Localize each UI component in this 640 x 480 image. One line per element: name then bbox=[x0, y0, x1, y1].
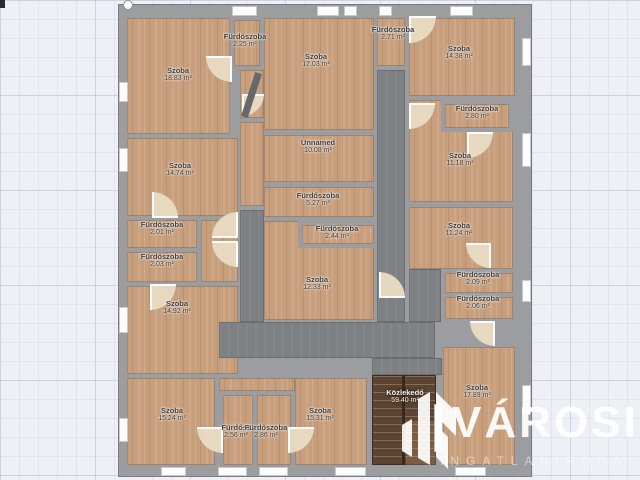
window[interactable] bbox=[455, 467, 486, 476]
room-area: 2.06 m² bbox=[457, 303, 500, 311]
room-label: Szoba11.24 m² bbox=[445, 221, 472, 238]
room-name: Közlekedő bbox=[386, 388, 424, 397]
window[interactable] bbox=[232, 6, 257, 16]
floorplan-canvas: Szoba18.83 m² Fürdőszoba2.25 m² Szoba17.… bbox=[0, 0, 640, 480]
room-label: Szoba14.92 m² bbox=[163, 299, 191, 316]
room-label: Fürdőszoba5.27 m² bbox=[297, 191, 340, 208]
room-label: Fürdőszoba2.71 m² bbox=[372, 25, 415, 42]
hall-stair-landing[interactable] bbox=[372, 358, 442, 375]
hall-corridor-left[interactable] bbox=[240, 210, 264, 322]
window[interactable] bbox=[119, 307, 128, 333]
room-area: 14.92 m² bbox=[163, 308, 191, 316]
room-name: Fürdőszoba bbox=[245, 423, 288, 432]
window[interactable] bbox=[522, 38, 531, 66]
room-area: 14.38 m² bbox=[445, 53, 473, 61]
room-label: Szoba18.83 m² bbox=[164, 66, 192, 83]
window[interactable] bbox=[522, 280, 531, 302]
window[interactable] bbox=[379, 6, 392, 16]
room-label: Szoba11.18 m² bbox=[446, 151, 473, 168]
room-label: Fürdőszoba2.25 m² bbox=[224, 32, 267, 49]
room-area: 17.03 m² bbox=[302, 61, 330, 69]
room-name: Fürdőszoba bbox=[141, 220, 184, 229]
room-name: Fürdőszoba bbox=[372, 25, 415, 34]
room-name: Szoba bbox=[158, 406, 186, 415]
window[interactable] bbox=[450, 6, 473, 16]
room-name: Szoba bbox=[445, 221, 472, 230]
window[interactable] bbox=[119, 82, 128, 102]
room-area: 10.08 m² bbox=[301, 147, 335, 155]
room-name: Fürdőszoba bbox=[297, 191, 340, 200]
room-label: Közlekedő59.40 m² bbox=[386, 388, 424, 405]
vestibule-floor[interactable] bbox=[240, 122, 264, 206]
room-label: Szoba17.03 m² bbox=[302, 52, 330, 69]
room-area: 2.25 m² bbox=[224, 41, 267, 49]
room-label: Szoba14.74 m² bbox=[166, 161, 194, 178]
room-name: Fürdőszoba bbox=[224, 32, 267, 41]
room-name: Szoba bbox=[164, 66, 192, 75]
room-area: 15.24 m² bbox=[158, 415, 186, 423]
room-area: 59.40 m² bbox=[386, 397, 424, 405]
room-area: 14.74 m² bbox=[166, 170, 194, 178]
room-name: Unnamed bbox=[301, 138, 335, 147]
room-name: Fürdőszoba bbox=[457, 294, 500, 303]
brand-subtitle: INGATLANIRODA bbox=[440, 454, 628, 468]
room-label: Fürdőszoba2.80 m² bbox=[456, 104, 499, 121]
window[interactable] bbox=[119, 148, 128, 172]
room-label: Szoba14.38 m² bbox=[445, 44, 473, 61]
room-area: 2.03 m² bbox=[141, 261, 184, 269]
window[interactable] bbox=[161, 467, 186, 476]
room-area: 5.27 m² bbox=[297, 200, 340, 208]
room-name: Fürdőszoba bbox=[456, 104, 499, 113]
room-label: Unnamed10.08 m² bbox=[301, 138, 335, 155]
room-area: 11.18 m² bbox=[446, 160, 473, 168]
room-name: Szoba bbox=[163, 299, 191, 308]
hall-corridor-widening[interactable] bbox=[409, 269, 441, 322]
room-area: 2.44 m² bbox=[316, 233, 359, 241]
room-name: Fürdőszoba bbox=[457, 270, 500, 279]
room-area: 2.86 m² bbox=[245, 432, 288, 440]
window[interactable] bbox=[119, 418, 128, 442]
window[interactable] bbox=[218, 467, 247, 476]
window[interactable] bbox=[317, 6, 339, 16]
room-area: 2.71 m² bbox=[372, 34, 415, 42]
room-label: Fürdőszoba2.86 m² bbox=[245, 423, 288, 440]
room-name: Szoba bbox=[446, 151, 473, 160]
window[interactable] bbox=[259, 467, 288, 476]
hall-corridor-horizontal[interactable] bbox=[219, 322, 435, 358]
room-area: 18.83 m² bbox=[164, 75, 192, 83]
rotate-handle[interactable] bbox=[123, 0, 133, 10]
room-area: 2.01 m² bbox=[141, 229, 184, 237]
room-label: Fürdőszoba2.09 m² bbox=[457, 270, 500, 287]
room-label: Szoba15.24 m² bbox=[158, 406, 186, 423]
room-name: Szoba bbox=[166, 161, 194, 170]
room-label: Szoba15.31 m² bbox=[306, 406, 334, 423]
room-name: Szoba bbox=[463, 383, 491, 392]
room-area: 12.33 m² bbox=[303, 284, 331, 292]
room-name: Szoba bbox=[302, 52, 330, 61]
room-szoba-17-03[interactable] bbox=[264, 18, 374, 130]
room-name: Fürdőszoba bbox=[316, 224, 359, 233]
window[interactable] bbox=[335, 467, 366, 476]
canvas-corner-mark bbox=[0, 0, 5, 8]
room-label: Fürdőszoba2.06 m² bbox=[457, 294, 500, 311]
room-label: Fürdőszoba2.03 m² bbox=[141, 252, 184, 269]
floor-strip bbox=[219, 378, 295, 391]
window[interactable] bbox=[522, 133, 531, 167]
door-leaf[interactable] bbox=[435, 405, 442, 451]
room-label: Szoba12.33 m² bbox=[303, 275, 331, 292]
brand-wordmark: VÁROSI bbox=[452, 398, 639, 448]
room-label: Fürdőszoba2.44 m² bbox=[316, 224, 359, 241]
window[interactable] bbox=[344, 6, 357, 16]
room-name: Szoba bbox=[306, 406, 334, 415]
room-label: Fürdőszoba2.01 m² bbox=[141, 220, 184, 237]
room-name: Fürdőszoba bbox=[141, 252, 184, 261]
room-area: 2.09 m² bbox=[457, 279, 500, 287]
room-name: Szoba bbox=[303, 275, 331, 284]
room-area: 11.24 m² bbox=[445, 230, 472, 238]
room-area: 15.31 m² bbox=[306, 415, 334, 423]
stair-lower-flight bbox=[406, 421, 436, 465]
room-area: 2.80 m² bbox=[456, 113, 499, 121]
room-name: Szoba bbox=[445, 44, 473, 53]
